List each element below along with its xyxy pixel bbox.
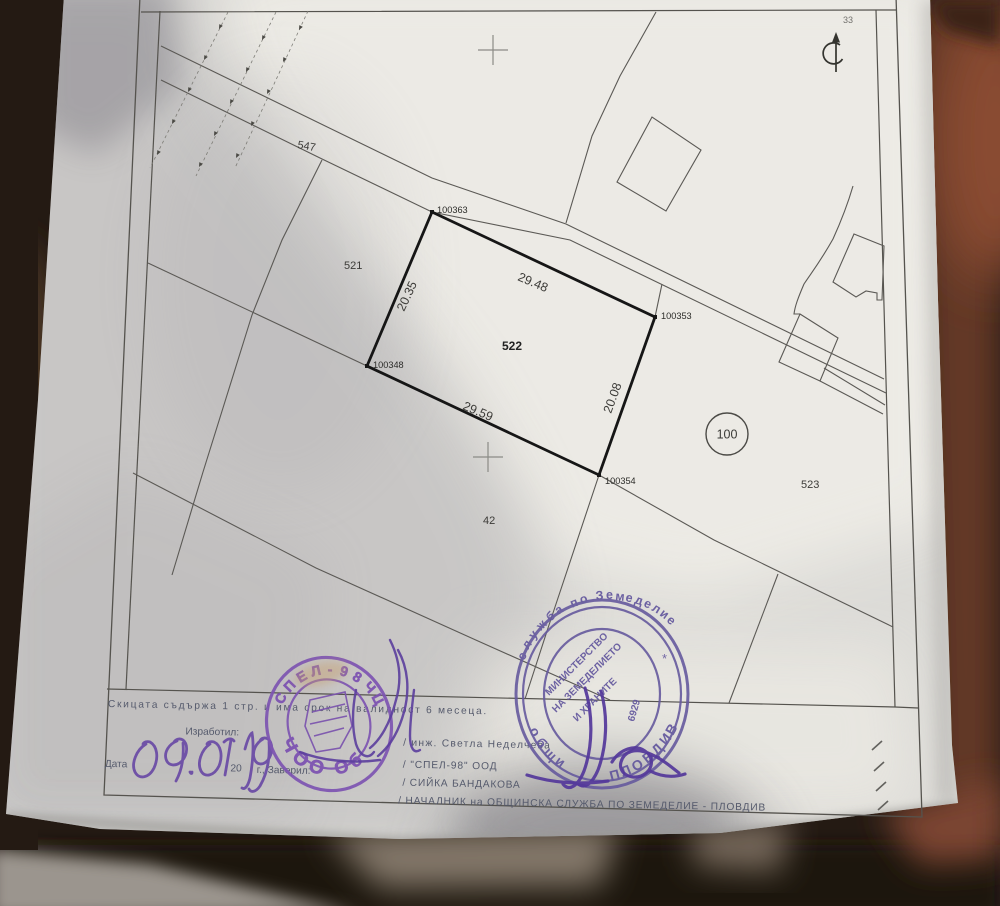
svg-text:522: 522: [502, 339, 522, 353]
svg-text:Дата: Дата: [105, 759, 128, 770]
svg-text:521: 521: [344, 260, 362, 272]
svg-text:*: *: [662, 651, 667, 666]
svg-text:м: м: [615, 589, 626, 604]
svg-text:100353: 100353: [661, 311, 692, 321]
svg-text:З: З: [595, 588, 604, 603]
svg-text:33: 33: [843, 15, 853, 25]
svg-text:523: 523: [801, 479, 819, 491]
svg-text:100348: 100348: [373, 360, 404, 370]
svg-text:100354: 100354: [605, 476, 636, 486]
svg-text:Изработил:: Изработил:: [185, 725, 239, 738]
svg-text:/ "СПЕЛ-98" ООД: / "СПЕЛ-98" ООД: [403, 760, 498, 773]
svg-text:е: е: [606, 588, 613, 602]
svg-text:100: 100: [717, 428, 738, 442]
svg-text:42: 42: [483, 515, 495, 527]
svg-text:100363: 100363: [437, 205, 468, 215]
